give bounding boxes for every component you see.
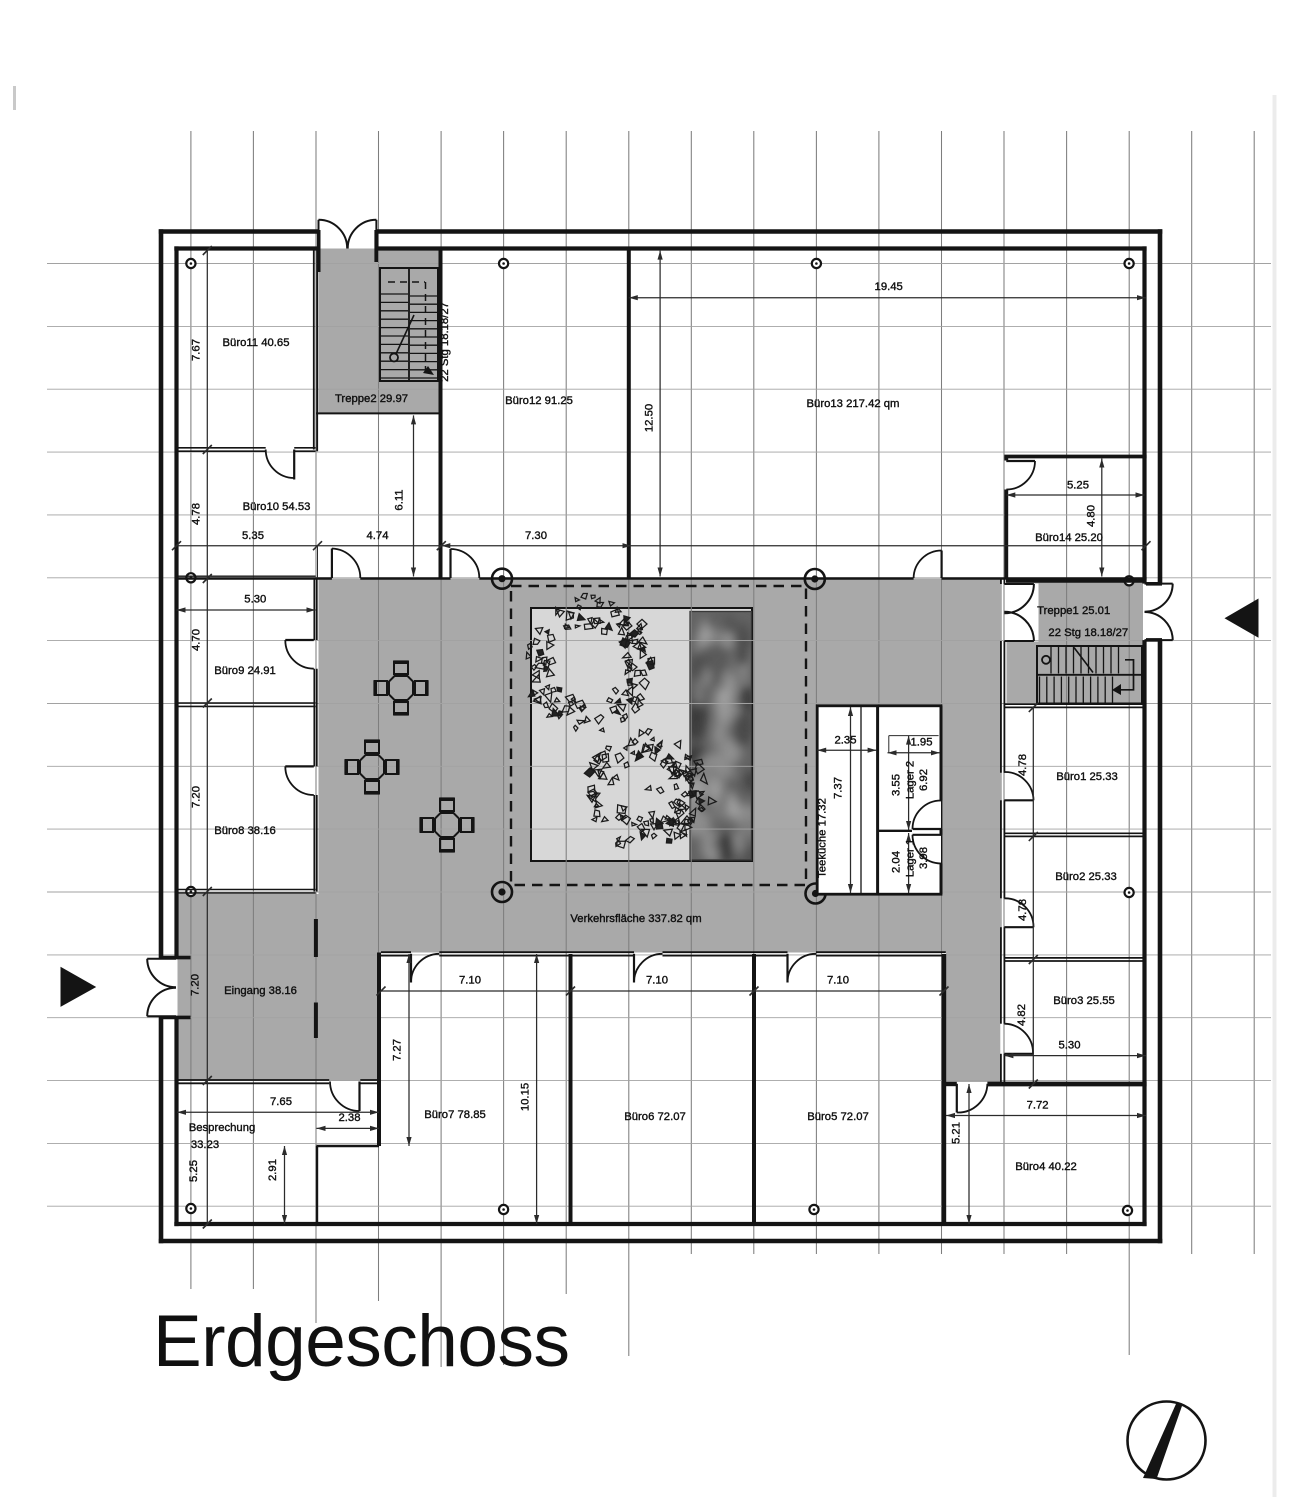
- svg-text:5.35: 5.35: [242, 530, 264, 542]
- svg-text:7.67: 7.67: [191, 339, 203, 361]
- svg-text:Verkehrsfläche 337.82 qm: Verkehrsfläche 337.82 qm: [570, 913, 701, 925]
- svg-text:6.11: 6.11: [394, 489, 406, 510]
- svg-text:Besprechung: Besprechung: [189, 1122, 256, 1134]
- svg-text:Büro10 54.53: Büro10 54.53: [243, 501, 311, 513]
- svg-text:7.20: 7.20: [190, 974, 202, 996]
- svg-text:22 Stg 18.18/27: 22 Stg 18.18/27: [1048, 627, 1128, 639]
- svg-text:2.04: 2.04: [891, 851, 903, 873]
- svg-text:7.30: 7.30: [525, 530, 547, 542]
- svg-text:Büro2 25.33: Büro2 25.33: [1055, 871, 1117, 883]
- svg-text:12.50: 12.50: [644, 404, 656, 432]
- svg-text:1.95: 1.95: [911, 737, 933, 749]
- svg-text:5.30: 5.30: [1059, 1040, 1081, 1052]
- svg-text:Büro5 72.07: Büro5 72.07: [807, 1111, 869, 1123]
- svg-text:Lager 1: Lager 1: [905, 839, 917, 877]
- svg-text:Büro1 25.33: Büro1 25.33: [1056, 771, 1118, 783]
- svg-text:4.74: 4.74: [367, 530, 389, 542]
- svg-text:5.21: 5.21: [951, 1122, 963, 1144]
- svg-text:Treppe1 25.01: Treppe1 25.01: [1037, 605, 1110, 617]
- svg-text:Büro11 40.65: Büro11 40.65: [223, 337, 290, 349]
- svg-text:2.91: 2.91: [267, 1159, 279, 1181]
- svg-text:7.37: 7.37: [833, 777, 845, 799]
- svg-text:Büro3 25.55: Büro3 25.55: [1053, 995, 1115, 1007]
- svg-text:Treppe2 29.97: Treppe2 29.97: [335, 393, 408, 405]
- svg-text:3.55: 3.55: [891, 774, 903, 796]
- svg-text:5.30: 5.30: [244, 594, 266, 606]
- svg-text:Büro7 78.85: Büro7 78.85: [424, 1109, 486, 1121]
- svg-text:Büro8 38.16: Büro8 38.16: [214, 825, 276, 837]
- svg-text:Teeküche 17.32: Teeküche 17.32: [817, 798, 829, 878]
- svg-text:4.78: 4.78: [1017, 754, 1029, 776]
- svg-text:4.78: 4.78: [191, 503, 203, 525]
- svg-text:7.27: 7.27: [392, 1039, 404, 1061]
- svg-text:7.10: 7.10: [459, 975, 481, 987]
- svg-text:6.92: 6.92: [918, 769, 930, 791]
- svg-text:Eingang 38.16: Eingang 38.16: [224, 985, 297, 997]
- svg-text:7.10: 7.10: [827, 975, 849, 987]
- svg-text:7.72: 7.72: [1027, 1100, 1049, 1112]
- svg-text:5.25: 5.25: [1067, 480, 1089, 492]
- svg-text:33.23: 33.23: [191, 1139, 219, 1151]
- svg-text:5.25: 5.25: [188, 1160, 200, 1182]
- svg-text:Büro14 25.20: Büro14 25.20: [1035, 532, 1103, 544]
- svg-text:7.20: 7.20: [191, 786, 203, 808]
- svg-text:2.38: 2.38: [339, 1112, 361, 1124]
- svg-text:Büro4 40.22: Büro4 40.22: [1015, 1161, 1077, 1173]
- svg-text:Lager 2: Lager 2: [905, 761, 917, 799]
- svg-text:4.82: 4.82: [1016, 1004, 1028, 1026]
- svg-text:Büro6 72.07: Büro6 72.07: [624, 1111, 686, 1123]
- svg-text:10.15: 10.15: [520, 1083, 532, 1111]
- svg-text:4.78: 4.78: [1017, 899, 1029, 921]
- svg-text:Büro9 24.91: Büro9 24.91: [214, 665, 276, 677]
- svg-text:4.70: 4.70: [191, 629, 203, 651]
- svg-text:4.80: 4.80: [1086, 505, 1098, 527]
- svg-text:2.35: 2.35: [835, 735, 857, 747]
- svg-text:3.98: 3.98: [918, 847, 930, 869]
- svg-text:7.65: 7.65: [270, 1096, 292, 1108]
- svg-text:19.45: 19.45: [875, 281, 903, 293]
- svg-text:Büro12 91.25: Büro12 91.25: [505, 395, 573, 407]
- svg-text:Erdgeschoss: Erdgeschoss: [153, 1301, 570, 1382]
- svg-text:Büro13 217.42 qm: Büro13 217.42 qm: [807, 398, 900, 410]
- svg-text:22 Stg 18.18/27: 22 Stg 18.18/27: [439, 302, 451, 382]
- svg-text:7.10: 7.10: [646, 975, 668, 987]
